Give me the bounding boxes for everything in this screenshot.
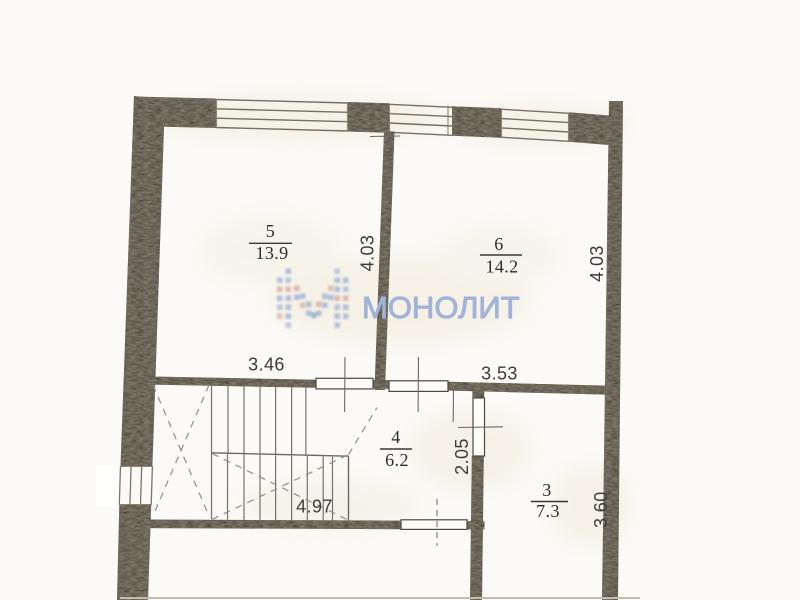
svg-text:6: 6 xyxy=(494,234,503,254)
svg-text:3: 3 xyxy=(542,480,551,500)
svg-text:МОНОЛИТ: МОНОЛИТ xyxy=(362,290,520,325)
svg-text:3.53: 3.53 xyxy=(481,364,518,384)
svg-text:4.97: 4.97 xyxy=(296,497,333,517)
svg-text:3.46: 3.46 xyxy=(248,355,285,375)
svg-text:5: 5 xyxy=(266,221,275,241)
svg-text:4.03: 4.03 xyxy=(358,235,378,272)
svg-text:6.2: 6.2 xyxy=(385,450,409,470)
svg-text:3.60: 3.60 xyxy=(591,491,611,528)
svg-text:2.05: 2.05 xyxy=(452,438,472,475)
svg-text:14.2: 14.2 xyxy=(485,257,518,277)
svg-text:4: 4 xyxy=(391,427,400,447)
svg-text:7.3: 7.3 xyxy=(536,501,560,521)
svg-text:4.03: 4.03 xyxy=(587,245,607,282)
svg-text:13.9: 13.9 xyxy=(255,243,288,263)
